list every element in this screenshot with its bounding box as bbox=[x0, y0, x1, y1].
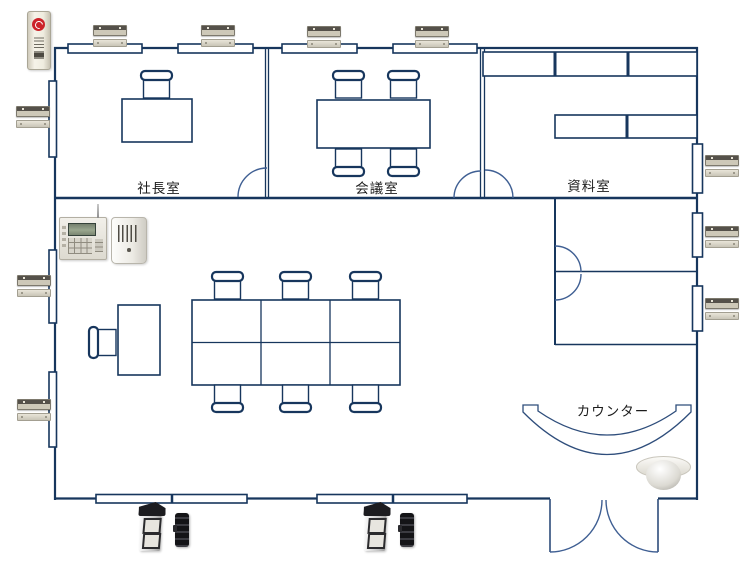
room-label-counter: カウンター bbox=[565, 400, 661, 420]
magnetic-contact-sensor bbox=[201, 25, 235, 47]
chair bbox=[280, 385, 311, 412]
siren-led-icon bbox=[127, 248, 131, 252]
magnetic-contact-sensor bbox=[415, 26, 449, 48]
red-circle-logo-icon bbox=[32, 18, 45, 31]
shelf bbox=[483, 52, 697, 76]
chair bbox=[388, 71, 419, 98]
siren-grille-icon bbox=[118, 225, 139, 242]
entry-door-arc bbox=[606, 500, 658, 552]
ceiling-dome-sensor bbox=[637, 457, 691, 491]
security-status-sign bbox=[27, 11, 51, 70]
floor-plan: 社長室 会議室 資料室 カウンター bbox=[0, 0, 748, 567]
chair bbox=[89, 327, 116, 358]
sign-text-block bbox=[34, 35, 44, 48]
window bbox=[693, 286, 703, 331]
beam-sensor-icon bbox=[400, 513, 414, 547]
beam-sensor-icon bbox=[364, 506, 387, 551]
room-label-document-room: 資料室 bbox=[549, 175, 629, 195]
office-furniture bbox=[89, 272, 400, 412]
presidents-office-furniture bbox=[122, 71, 192, 142]
magnetic-contact-sensor bbox=[16, 106, 50, 128]
indoor-siren-unit bbox=[111, 217, 147, 264]
beam-sensor-icon bbox=[139, 506, 162, 551]
chair bbox=[280, 272, 311, 299]
outdoor-beam-sensor-pair bbox=[363, 503, 421, 553]
magnetic-contact-sensor bbox=[705, 155, 739, 177]
magnetic-contact-sensor bbox=[307, 26, 341, 48]
beam-sensor-icon bbox=[175, 513, 189, 547]
door-arc bbox=[238, 168, 267, 197]
door-arc bbox=[485, 170, 513, 198]
chair bbox=[212, 272, 243, 299]
desk bbox=[122, 99, 192, 142]
lcd-screen bbox=[68, 223, 96, 236]
side-buttons bbox=[95, 239, 103, 252]
magnetic-contact-sensor bbox=[17, 399, 51, 421]
door-arc bbox=[454, 171, 481, 198]
window bbox=[693, 144, 703, 193]
magnetic-contact-sensor bbox=[705, 298, 739, 320]
chair bbox=[333, 149, 364, 176]
entry-door-arc bbox=[550, 500, 602, 552]
chair bbox=[212, 385, 243, 412]
chair bbox=[141, 71, 172, 98]
keypad bbox=[68, 238, 92, 254]
entry-door-jambs bbox=[550, 499, 658, 552]
outdoor-beam-sensor-pair bbox=[138, 503, 196, 553]
speaker-slots bbox=[62, 225, 66, 247]
antenna-icon bbox=[97, 204, 99, 218]
chair bbox=[350, 385, 381, 412]
chair bbox=[333, 71, 364, 98]
room-label-meeting-room: 会議室 bbox=[337, 177, 417, 197]
magnetic-contact-sensor bbox=[705, 226, 739, 248]
sign-code-block bbox=[34, 51, 44, 59]
room-label-presidents-office: 社長室 bbox=[119, 177, 199, 197]
chair bbox=[388, 149, 419, 176]
meeting-room-furniture bbox=[317, 71, 430, 176]
door-arc bbox=[555, 246, 581, 272]
window bbox=[693, 213, 703, 257]
floor-plan-drawing bbox=[0, 0, 748, 567]
window bbox=[49, 81, 57, 157]
alarm-control-panel bbox=[59, 217, 107, 260]
meeting-table bbox=[317, 100, 430, 148]
door-arc bbox=[555, 274, 581, 300]
desk bbox=[118, 305, 160, 375]
magnetic-contact-sensor bbox=[17, 275, 51, 297]
chair bbox=[350, 272, 381, 299]
magnetic-contact-sensor bbox=[93, 25, 127, 47]
document-room-shelves bbox=[483, 52, 697, 138]
